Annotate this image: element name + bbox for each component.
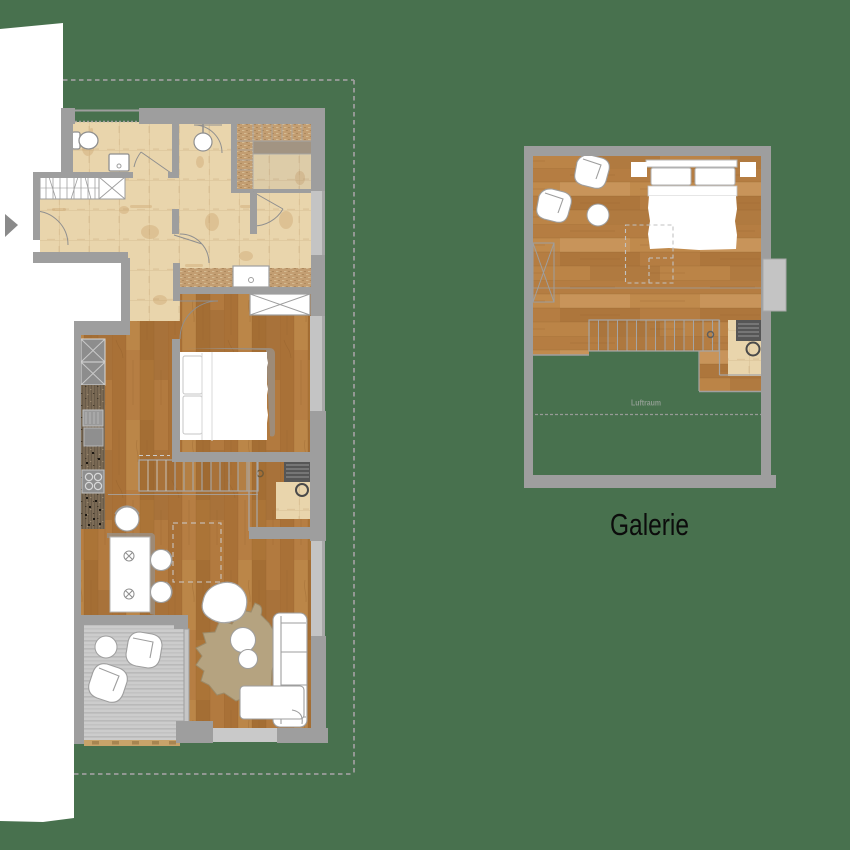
svg-text:Galerie: Galerie: [610, 507, 689, 542]
svg-text:Luftraum: Luftraum: [631, 398, 661, 408]
